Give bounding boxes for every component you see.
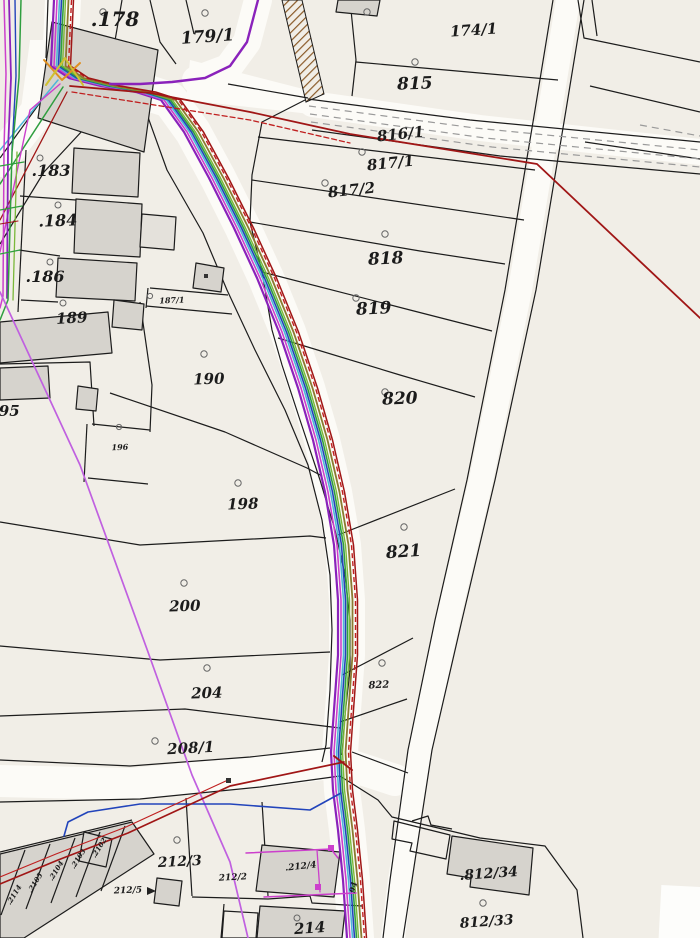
parcel-label-822: 822 [368,679,389,691]
building-annex [140,214,176,250]
map-viewport[interactable]: .178 179/1 174/1 815 816/1 817/1 817/2 8… [0,0,700,938]
parcel-label-212-2: 212/2 [217,872,247,884]
building [56,258,137,301]
parcel-label-187-1: 187/1 [159,295,185,306]
building [154,878,182,906]
parcel-label-214: 214 [292,918,325,938]
building [72,148,140,197]
building [74,199,142,257]
telecom-node [328,845,334,851]
parcel-label-815: 815 [396,73,433,94]
point-mark [204,274,208,278]
parcel-label-200: 200 [168,596,201,615]
telecom-node [315,884,321,890]
parcel-label-208-1: 208/1 [166,738,215,758]
building [76,386,98,411]
parcel-label-183: .183 [32,161,71,180]
building [112,300,144,330]
parcel-label-178: .178 [91,7,140,31]
parcel-label-198: 198 [227,494,259,513]
parcel-label-195: 195 [0,402,20,420]
parcel-label-821: 821 [384,541,422,563]
parcel-label-186: .186 [26,267,65,286]
parcel-label-818: 818 [366,248,404,270]
parcel-label-820: 820 [381,388,418,409]
parcel-label-204: 204 [190,683,223,702]
parcel-label-189: 189 [56,308,89,328]
parcel-label-174-1: 174/1 [449,19,497,40]
parcel-label-190: 190 [193,369,225,388]
bright-patch [659,885,700,938]
parcel-label-184: .184 [38,210,78,230]
parcel-label-212-3: 212/3 [156,853,202,871]
point-mark [226,778,231,783]
parcel-label-179-1: 179/1 [180,25,235,49]
parcel-label-196: 196 [111,442,128,453]
parcel-label-819: 819 [354,298,392,320]
building [193,263,224,292]
parcel-label-212-5: 212/5 [113,886,143,897]
cadastral-map-canvas[interactable]: .178 179/1 174/1 815 816/1 817/1 817/2 8… [0,0,700,938]
